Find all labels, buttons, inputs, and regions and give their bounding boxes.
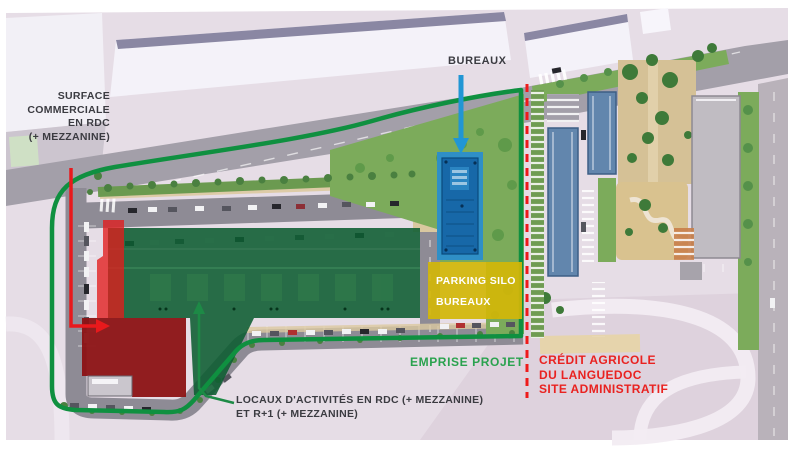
credit-agricole-line3: SITE ADMINISTRATIF <box>539 382 668 397</box>
bureaux-silo-building <box>437 152 483 260</box>
emprise-projet-label: EMPRISE PROJET <box>410 355 524 369</box>
parking-silo-line2: BUREAUX <box>436 292 522 313</box>
surface-commerciale-line4: (+ MEZZANINE) <box>2 131 110 145</box>
surface-commerciale-line1: SURFACE <box>2 90 110 104</box>
site-plan: SURFACE COMMERCIALE EN RDC (+ MEZZANINE)… <box>0 0 800 457</box>
locaux-activites-label: LOCAUX D'ACTIVITÉS EN RDC (+ MEZZANINE) … <box>236 394 483 421</box>
ca-main-building <box>692 96 740 258</box>
credit-agricole-line1: CRÉDIT AGRICOLE <box>539 353 668 368</box>
surface-commerciale-label: SURFACE COMMERCIALE EN RDC (+ MEZZANINE) <box>2 90 110 144</box>
site-plan-map <box>0 0 800 457</box>
locaux-line1: LOCAUX D'ACTIVITÉS EN RDC (+ MEZZANINE) <box>236 394 483 408</box>
surface-commerciale-line2: COMMERCIALE <box>2 104 110 118</box>
credit-agricole-label: CRÉDIT AGRICOLE DU LANGUEDOC SITE ADMINI… <box>539 353 668 397</box>
parking-silo-line1: PARKING SILO <box>436 271 522 292</box>
surface-commerciale-line3: EN RDC <box>2 117 110 131</box>
parking-silo-label-box: PARKING SILO BUREAUX <box>428 262 522 319</box>
locaux-line2: ET R+1 (+ MEZZANINE) <box>236 408 483 422</box>
credit-agricole-line2: DU LANGUEDOC <box>539 368 668 383</box>
bureaux-label: BUREAUX <box>448 55 507 67</box>
ca-building-roof-2 <box>588 92 616 174</box>
